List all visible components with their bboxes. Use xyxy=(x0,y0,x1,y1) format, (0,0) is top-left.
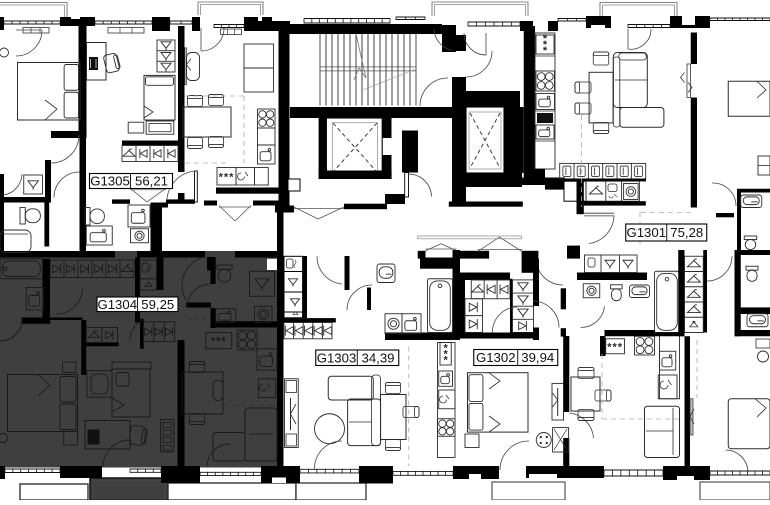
svg-text:***: *** xyxy=(607,341,623,353)
svg-text:59,25: 59,25 xyxy=(141,297,174,312)
svg-text:G1305: G1305 xyxy=(90,174,130,189)
svg-text:***: *** xyxy=(219,171,235,183)
svg-text:G1301: G1301 xyxy=(626,225,666,240)
svg-text:*: * xyxy=(443,354,448,366)
svg-text:56,21: 56,21 xyxy=(135,174,168,189)
svg-text:39,94: 39,94 xyxy=(521,350,554,365)
svg-text:G1303: G1303 xyxy=(317,350,357,365)
svg-text:***: *** xyxy=(211,336,227,348)
svg-text:*: * xyxy=(543,45,548,57)
svg-text:G1302: G1302 xyxy=(476,350,516,365)
svg-text:75,28: 75,28 xyxy=(670,225,703,240)
svg-text:G1304: G1304 xyxy=(97,297,137,312)
svg-text:34,39: 34,39 xyxy=(361,350,394,365)
